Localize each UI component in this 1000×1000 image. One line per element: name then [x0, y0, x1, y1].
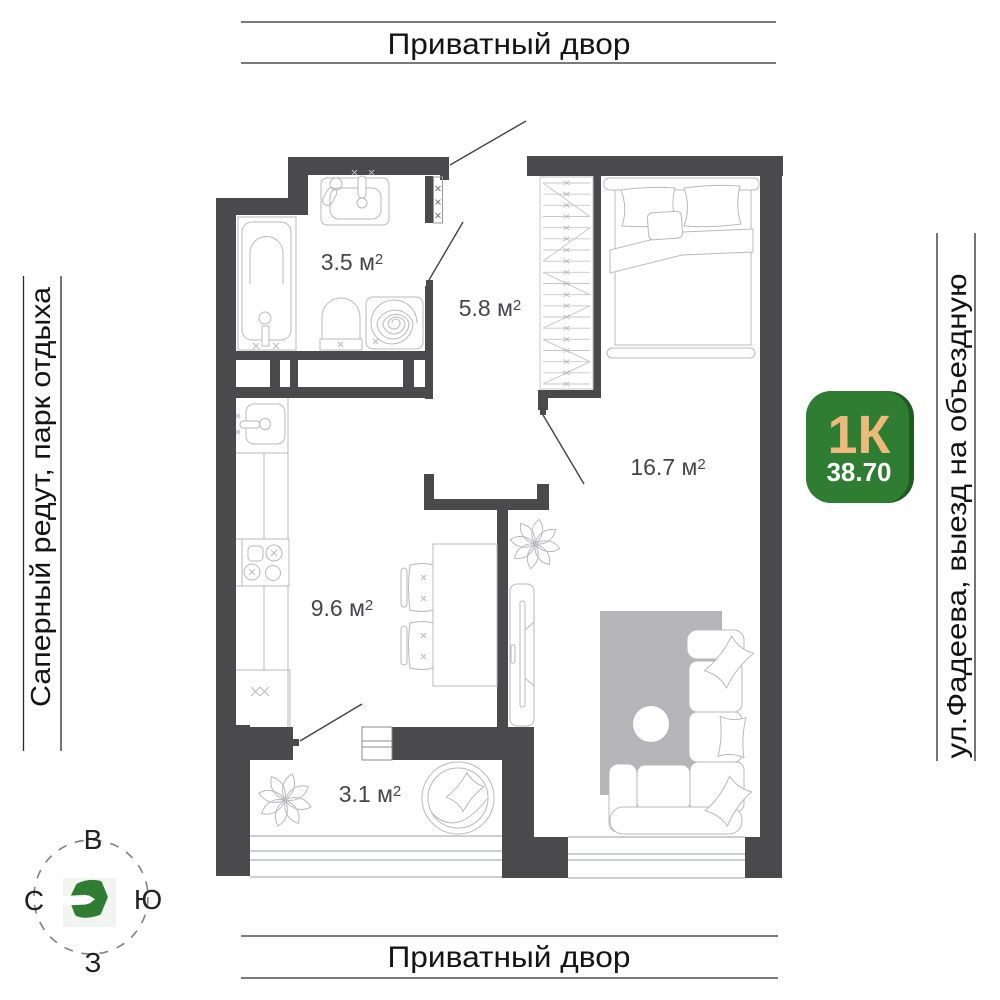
- svg-text:ул.Фадеева, выезд на объездную: ул.Фадеева, выезд на объездную: [941, 274, 972, 759]
- svg-text:3.1 м2: 3.1 м2: [339, 781, 402, 807]
- svg-text:Приватный двор: Приватный двор: [388, 941, 631, 974]
- svg-text:9.6 м2: 9.6 м2: [311, 595, 374, 621]
- svg-text:Ю: Ю: [134, 884, 162, 915]
- svg-text:Приватный двор: Приватный двор: [388, 28, 631, 61]
- svg-text:Саперный редут, парк отдыха: Саперный редут, парк отдыха: [25, 287, 56, 707]
- svg-text:3.5 м2: 3.5 м2: [321, 249, 384, 275]
- svg-text:16.7 м2: 16.7 м2: [630, 454, 705, 480]
- svg-text:38.70: 38.70: [826, 457, 891, 487]
- svg-text:С: С: [24, 885, 44, 916]
- svg-text:5.8 м2: 5.8 м2: [459, 295, 522, 321]
- svg-text:З: З: [85, 947, 102, 978]
- svg-text:В: В: [84, 824, 103, 855]
- svg-text:1К: 1К: [828, 405, 892, 465]
